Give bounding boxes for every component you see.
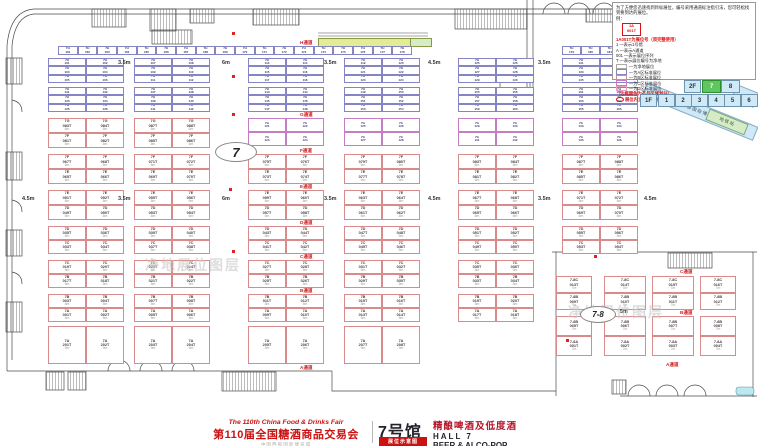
- booth: 7H122: [382, 66, 420, 74]
- booth: 7E086T6m: [600, 169, 638, 184]
- booth: 7H138: [172, 87, 210, 95]
- booth: 7E082T6m: [496, 169, 534, 184]
- aisle-width-label: 3.5m: [118, 60, 131, 66]
- booth: 7H112: [172, 75, 210, 83]
- booth: 7H111: [134, 75, 172, 83]
- aisle-label: H通道: [300, 40, 313, 46]
- booth: 7D055T5m: [562, 226, 600, 240]
- booth: 7C028T5m: [286, 260, 324, 274]
- booth: 7E051T6m: [48, 190, 86, 205]
- minimap-hall-8[interactable]: 8: [721, 80, 740, 93]
- booth: 7G136: [600, 132, 638, 146]
- booth: 7H175: [333, 46, 353, 55]
- booth: 7F083T6m: [458, 154, 496, 169]
- aisle-label: B通道: [300, 288, 313, 294]
- booth: 7A018T5m: [496, 308, 534, 322]
- booth: 7-8C014T7m: [604, 276, 646, 293]
- booth: 7G132: [496, 132, 534, 146]
- booth: 7D069T6m: [562, 205, 600, 220]
- booth: 7B019T5m: [458, 294, 496, 308]
- booth: 7A208T9m: [382, 326, 420, 364]
- booth: 7D050T6m: [86, 205, 124, 220]
- booth: 7A205T9m: [248, 326, 286, 364]
- booth: 7H123: [344, 75, 382, 83]
- booth: 7A002T5m: [86, 308, 124, 322]
- booth: 7H157: [458, 95, 496, 103]
- booth: 7B020T5m: [496, 294, 534, 308]
- booth: 7H131: [48, 87, 86, 95]
- booth: 7F081T6m: [48, 133, 86, 148]
- aisle-label: F通道: [300, 148, 312, 154]
- legend-swatch-label: —为B区标准展位: [629, 75, 661, 80]
- booth: 7E059T6m: [248, 190, 286, 205]
- booth: 7H129: [458, 75, 496, 83]
- booth: 7A017T5m: [458, 308, 496, 322]
- booth: 7H128: [496, 66, 534, 74]
- booth: 7B025T5m: [248, 274, 286, 288]
- booth: 7C020T5m: [86, 260, 124, 274]
- booth: 7B007T5m: [134, 294, 172, 308]
- booth: 7H135: [562, 75, 600, 83]
- booth: 7G123: [248, 132, 286, 146]
- booth: 7E069T6m: [134, 169, 172, 184]
- booth: 7B022T5m: [172, 274, 210, 288]
- booth: 7H178: [392, 46, 412, 55]
- booth: 7H105: [48, 75, 86, 83]
- booth: 7H120: [382, 58, 420, 66]
- booth: 7D057T6m: [248, 205, 286, 220]
- booth: 7H110: [172, 66, 210, 74]
- booth: 7B021T5m: [134, 274, 172, 288]
- booth: 7E055T6m: [134, 190, 172, 205]
- booth: 7A006T5m: [172, 308, 210, 322]
- watermark-text: 净地展位图层: [145, 255, 241, 275]
- booth: 7F071T6m: [134, 154, 172, 169]
- hall-number-oval: 7-8: [580, 306, 616, 323]
- booth: 7A203T9m: [134, 326, 172, 364]
- booth: 7D054T6m: [172, 205, 210, 220]
- booth: 7H173: [294, 46, 314, 55]
- floorplan-badge: 展位示意图: [379, 437, 427, 446]
- booth: 7H165: [562, 104, 600, 112]
- booth: 7H133: [562, 66, 600, 74]
- venue-name: 中国西部国际博览城: [205, 442, 367, 446]
- booth: 7D039T5m: [134, 226, 172, 240]
- booth: 7-8A004T7m: [700, 336, 736, 356]
- booth: 7G087T6m: [134, 118, 172, 133]
- booth: 7D058T6m: [286, 205, 324, 220]
- booth: 7H163: [97, 46, 117, 55]
- booth: 7E066T6m: [86, 169, 124, 184]
- booth: 7H167: [176, 46, 196, 55]
- booth: 7H176: [353, 46, 373, 55]
- booth: 7G128: [382, 132, 420, 146]
- legend-box: 为了方便您迅速找到目标展位，编号采用通道标注指引法，您可轻松找到要到达的展位。 …: [612, 2, 756, 80]
- booth: 7C045T5m: [344, 240, 382, 254]
- booth: 7-8A003T7m: [652, 336, 694, 356]
- booth: 7H155: [458, 87, 496, 95]
- booth: 7F068T6m: [86, 154, 124, 169]
- booth: 7E067T6m: [458, 190, 496, 205]
- booth: 7D036T5m: [86, 226, 124, 240]
- booth: 7H166: [156, 46, 176, 55]
- booth: 7B004T5m: [86, 294, 124, 308]
- booth: 7H154: [382, 104, 420, 112]
- booth: 7H108: [172, 58, 210, 66]
- booth: 7E078T6m: [382, 169, 420, 184]
- booth: 7H125: [458, 58, 496, 66]
- booth: 7G130: [496, 118, 534, 132]
- legend-swatch-label: —为C区标准展位: [629, 81, 661, 86]
- booth: 7G134: [600, 118, 638, 132]
- booth: 7E064T6m: [382, 190, 420, 205]
- booth: 7B008T5m: [172, 294, 210, 308]
- booth: 7D062T6m: [382, 205, 420, 220]
- booth: 7H148: [286, 104, 324, 112]
- booth: 7B030T5m: [382, 274, 420, 288]
- booth: 7H103: [48, 66, 86, 74]
- minimap-floor1-label: 1F: [640, 94, 657, 107]
- booth: 7E072T6m: [600, 190, 638, 205]
- booth: 7G131: [458, 132, 496, 146]
- fire-point-marker: [566, 339, 569, 342]
- booth: 7A009T5m: [248, 308, 286, 322]
- booth: 7D053T6m: [134, 205, 172, 220]
- booth: 7H161: [58, 46, 78, 55]
- booth: 7H131: [562, 58, 600, 66]
- booth: 7F088T6m: [600, 154, 638, 169]
- fire-point-marker: [232, 250, 235, 253]
- booth: 7C031T5m: [344, 260, 382, 274]
- booth: 7G126: [382, 118, 420, 132]
- aisle-width-label: 3.5m: [118, 196, 131, 202]
- booth: 7A206T9m: [286, 326, 324, 364]
- booth: 7H104: [86, 66, 124, 74]
- booth: 7H164: [117, 46, 137, 55]
- booth: 7E077T6m: [344, 169, 382, 184]
- booth: 7C049T5m: [458, 240, 496, 254]
- booth: 7G124: [286, 132, 324, 146]
- booth: 7E063T6m: [344, 190, 382, 205]
- booth: 7E074T6m: [286, 169, 324, 184]
- booth: 7G135: [562, 132, 600, 146]
- booth: 7H140: [172, 95, 210, 103]
- booth: 7A201T9m: [48, 326, 86, 364]
- booth: 7F084T6m: [496, 154, 534, 169]
- booth: 7F087T6m: [562, 154, 600, 169]
- minimap-hall-6[interactable]: 6: [741, 94, 758, 107]
- booth: 7H169: [215, 46, 235, 55]
- booth: 7E073T6m: [248, 169, 286, 184]
- booth: 7D049T6m: [48, 205, 86, 220]
- booth: 7C034T5m: [86, 240, 124, 254]
- booth: 7C037T5m: [134, 240, 172, 254]
- booth: 7B017T5m: [48, 274, 86, 288]
- booth: 7H141: [134, 104, 172, 112]
- fire-point-marker: [232, 113, 235, 116]
- booth: 7E081T6m: [458, 169, 496, 184]
- booth: 7H133: [48, 95, 86, 103]
- booth: 7E065T6m: [48, 169, 86, 184]
- aisle-label: A通道: [666, 362, 679, 368]
- aisle-label: E通道: [300, 184, 312, 190]
- booth: 7D056T5m: [600, 226, 638, 240]
- minimap-hall-1[interactable]: 1: [658, 94, 675, 107]
- title-block: The 110th China Food & Drinks Fair 第110届…: [0, 414, 758, 446]
- booth: 7H162: [78, 46, 98, 55]
- booth: 7D061T6m: [344, 205, 382, 220]
- aisle-label: C通道: [300, 254, 313, 260]
- booth: 7D047T5m: [344, 226, 382, 240]
- booth: 7H170: [235, 46, 255, 55]
- booth: 7H144: [286, 87, 324, 95]
- booth: 7D035T5m: [48, 226, 86, 240]
- booth: 7H151: [344, 95, 382, 103]
- booth: 7A010T5m: [286, 308, 324, 322]
- booth: 7H117: [248, 75, 286, 83]
- hall-name-en: HALL 7: [433, 432, 517, 441]
- aisle-width-label: 6m: [222, 196, 230, 202]
- booth: 7H135: [48, 104, 86, 112]
- booth: 7D048T5m: [382, 226, 420, 240]
- booth: 7B029T5m: [344, 274, 382, 288]
- booth: 7H142: [172, 104, 210, 112]
- booth: 7D040T5m: [172, 226, 210, 240]
- aisle-width-label: 3.5m: [324, 196, 337, 202]
- booth: 7H124: [382, 75, 420, 83]
- walkway-highlight: [410, 38, 432, 47]
- category-en: BEER & ALCO-POP: [433, 441, 517, 446]
- booth: 7B034T5m: [496, 274, 534, 288]
- booth: 7H168: [196, 46, 216, 55]
- booth: 7D043T5m: [248, 226, 286, 240]
- pillar-oval-icon: [616, 97, 624, 103]
- booth: 7H152: [382, 95, 420, 103]
- legend-intro: 为了方便您迅速找到目标展位，编号采用通道标注指引法，您可轻松找到要到达的展位。: [616, 5, 752, 16]
- booth: 7F086T6m: [172, 133, 210, 148]
- booth: 7F082T6m: [86, 133, 124, 148]
- hall-number-oval: 7: [215, 142, 257, 162]
- aisle-width-label: 3.5m: [538, 196, 551, 202]
- minimap-hall-2[interactable]: 2: [675, 94, 692, 107]
- booth: 7H119: [344, 58, 382, 66]
- booth: 7H115: [248, 66, 286, 74]
- booth: 7A202T9m: [86, 326, 124, 364]
- aisle-label: B通道: [680, 310, 693, 316]
- booth: 7A001T5m: [48, 308, 86, 322]
- aisle-width-label: 4.5m: [428, 60, 441, 66]
- booth: 7B018T5m: [86, 274, 124, 288]
- booth: 7H149: [344, 87, 382, 95]
- category-cn: 精酿啤酒及低度酒: [433, 418, 517, 432]
- fire-point-marker: [232, 32, 235, 35]
- booth: 7-8A002T7m: [604, 336, 646, 356]
- fair-title-en: The 110th China Food & Drinks Fair: [205, 419, 367, 426]
- booth: 7C042T5m: [286, 240, 324, 254]
- aisle-width-label: 4.5m: [22, 196, 35, 202]
- aisle-label: C通道: [680, 269, 693, 275]
- aisle-width-label: 6m: [222, 60, 230, 66]
- booth: 7H150: [382, 87, 420, 95]
- booth: 7B012T5m: [286, 294, 324, 308]
- booth: 7-8A001T7m: [556, 336, 592, 356]
- aisle-width-label: 4.5m: [428, 196, 441, 202]
- fire-point-marker: [229, 188, 232, 191]
- booth: 7A204T9m: [172, 326, 210, 364]
- booth: 7D044T5m: [286, 226, 324, 240]
- booth: 7C053T5m: [562, 240, 600, 254]
- aisle-label: D通道: [300, 220, 313, 226]
- booth: 7-8B008T7m: [700, 316, 736, 336]
- booth: 7H146: [286, 95, 324, 103]
- legend-example-label: 例：: [616, 16, 752, 22]
- booth: 7G088T6m: [172, 118, 210, 133]
- booth: 7G121: [248, 118, 286, 132]
- title-divider: [372, 421, 373, 443]
- booth: 7H147: [248, 104, 286, 112]
- booth: 7H156: [496, 87, 534, 95]
- booth: 7H134: [86, 95, 124, 103]
- legend-sample-bottom: 001T: [623, 29, 640, 34]
- booth: 7E056T6m: [172, 190, 210, 205]
- booth: 7E060T6m: [286, 190, 324, 205]
- legend-sample-booth: 1A 001T: [622, 23, 641, 36]
- booth: 7C046T5m: [382, 240, 420, 254]
- booth: 7-8C016T7m: [700, 276, 736, 293]
- booth: 7H160: [496, 104, 534, 112]
- booth: 7H121: [344, 66, 382, 74]
- booth: 7G127: [344, 132, 382, 146]
- fire-point-marker: [232, 75, 235, 78]
- booth: 7H179: [562, 46, 581, 55]
- booth: 7H161: [562, 87, 600, 95]
- aisle-width-label: 4.5m: [644, 196, 657, 202]
- booth: 7B016T5m: [382, 294, 420, 308]
- booth: 7A005T5m: [134, 308, 172, 322]
- booth: 7E085T6m: [562, 169, 600, 184]
- booth: 7A014T5m: [382, 308, 420, 322]
- booth: 7H163: [562, 95, 600, 103]
- booth: 7G083T6m: [48, 118, 86, 133]
- booth: 7H158: [496, 95, 534, 103]
- booth: 7C019T5m: [48, 260, 86, 274]
- booth: 7F079T6m: [344, 154, 382, 169]
- booth: 7E068T6m: [496, 190, 534, 205]
- booth: 7F076T6m: [286, 154, 324, 169]
- booth: 7C054T5m: [600, 240, 638, 254]
- booth: 7-8B012T7m: [700, 293, 736, 310]
- booth: 7C027T5m: [248, 260, 286, 274]
- aisle-width-label: 3.5m: [324, 60, 337, 66]
- aisle-label: A通道: [300, 365, 313, 371]
- booth: 7H107: [134, 58, 172, 66]
- booth: 7A207T9m: [344, 326, 382, 364]
- aisle-label: G通道: [300, 112, 313, 118]
- booth: 7F085T6m: [134, 133, 172, 148]
- booth: 7H136: [86, 104, 124, 112]
- booth: 7G133: [562, 118, 600, 132]
- booth: 7H137: [134, 87, 172, 95]
- minimap-hall-5[interactable]: 5: [724, 94, 741, 107]
- booth: 7-8C015T7m: [652, 276, 694, 293]
- booth: 7B011T5m: [248, 294, 286, 308]
- fair-title-cn: 第110届全国糖酒商品交易会: [205, 426, 367, 442]
- booth: 7H114: [286, 58, 324, 66]
- booth: 7C036T5m: [496, 260, 534, 274]
- minimap-hall-3[interactable]: 3: [691, 94, 708, 107]
- booth: 7E071T6m: [562, 190, 600, 205]
- legend-items: 1 —表示1号馆A —表示A通道001 —表示展位序列T —表示展位编号为净地: [616, 42, 752, 64]
- booth: 7H118: [286, 75, 324, 83]
- booth: 7C032T5m: [382, 260, 420, 274]
- booth: 7C038T5m: [172, 240, 210, 254]
- booth: 7H174: [314, 46, 334, 55]
- booth: 7H109: [134, 66, 172, 74]
- booth: 7H139: [134, 95, 172, 103]
- booth: 7H166: [600, 104, 638, 112]
- booth: 7H171: [255, 46, 275, 55]
- booth: 7H106: [86, 75, 124, 83]
- booth: 7H145: [248, 95, 286, 103]
- booth: 7H126: [496, 58, 534, 66]
- booth: 7F080T6m: [382, 154, 420, 169]
- minimap-hall-4[interactable]: 4: [708, 94, 725, 107]
- minimap-hall-7[interactable]: 7: [702, 80, 721, 93]
- floorplan-page: 7H1617H1627H1637H1647H1657H1667H1677H168…: [0, 0, 758, 446]
- booth: 7H127: [458, 66, 496, 74]
- booth: 7E070T6m: [172, 169, 210, 184]
- booth: 7H116: [286, 66, 324, 74]
- booth: 7C033T5m: [48, 240, 86, 254]
- booth: 7C035T5m: [458, 260, 496, 274]
- booth: 7-8C013T7m: [556, 276, 592, 293]
- booth: 7A013T5m: [344, 308, 382, 322]
- legend-swatch-label: —为净地展位: [629, 64, 654, 69]
- booth: 7D065T6m: [458, 205, 496, 220]
- booth: 7H177: [373, 46, 393, 55]
- aisle-width-label: 3.5m: [538, 60, 551, 66]
- booth: 7H153: [344, 104, 382, 112]
- booth: 7C050T5m: [496, 240, 534, 254]
- booth: 7G122: [286, 118, 324, 132]
- booth: 7B003T5m: [48, 294, 86, 308]
- booth: 7D052T5m: [496, 226, 534, 240]
- legend-swatch-label: —为A区标准展位: [629, 70, 661, 75]
- booth: 7H101: [48, 58, 86, 66]
- booth: 7D070T6m: [600, 205, 638, 220]
- booth: 7H165: [137, 46, 157, 55]
- booth: 7G129: [458, 118, 496, 132]
- booth: 7B026T5m: [286, 274, 324, 288]
- booth: 7H113: [248, 58, 286, 66]
- booth: 7H172: [274, 46, 294, 55]
- booth: 7F067T6m: [48, 154, 86, 169]
- booth: 7H159: [458, 104, 496, 112]
- booth: 7G125: [344, 118, 382, 132]
- booth: 7B033T5m: [458, 274, 496, 288]
- fire-point-marker: [594, 255, 597, 258]
- booth: 7H143: [248, 87, 286, 95]
- booth: 7B015T5m: [344, 294, 382, 308]
- booth: 7D066T6m: [496, 205, 534, 220]
- booth: 7F072T6m: [172, 154, 210, 169]
- booth: 7C041T5m: [248, 240, 286, 254]
- booth: 7H130: [496, 75, 534, 83]
- minimap-floor2-label: 2F: [684, 80, 701, 93]
- booth: 7H132: [86, 87, 124, 95]
- booth: 7H180: [581, 46, 600, 55]
- booth: 7G084T6m: [86, 118, 124, 133]
